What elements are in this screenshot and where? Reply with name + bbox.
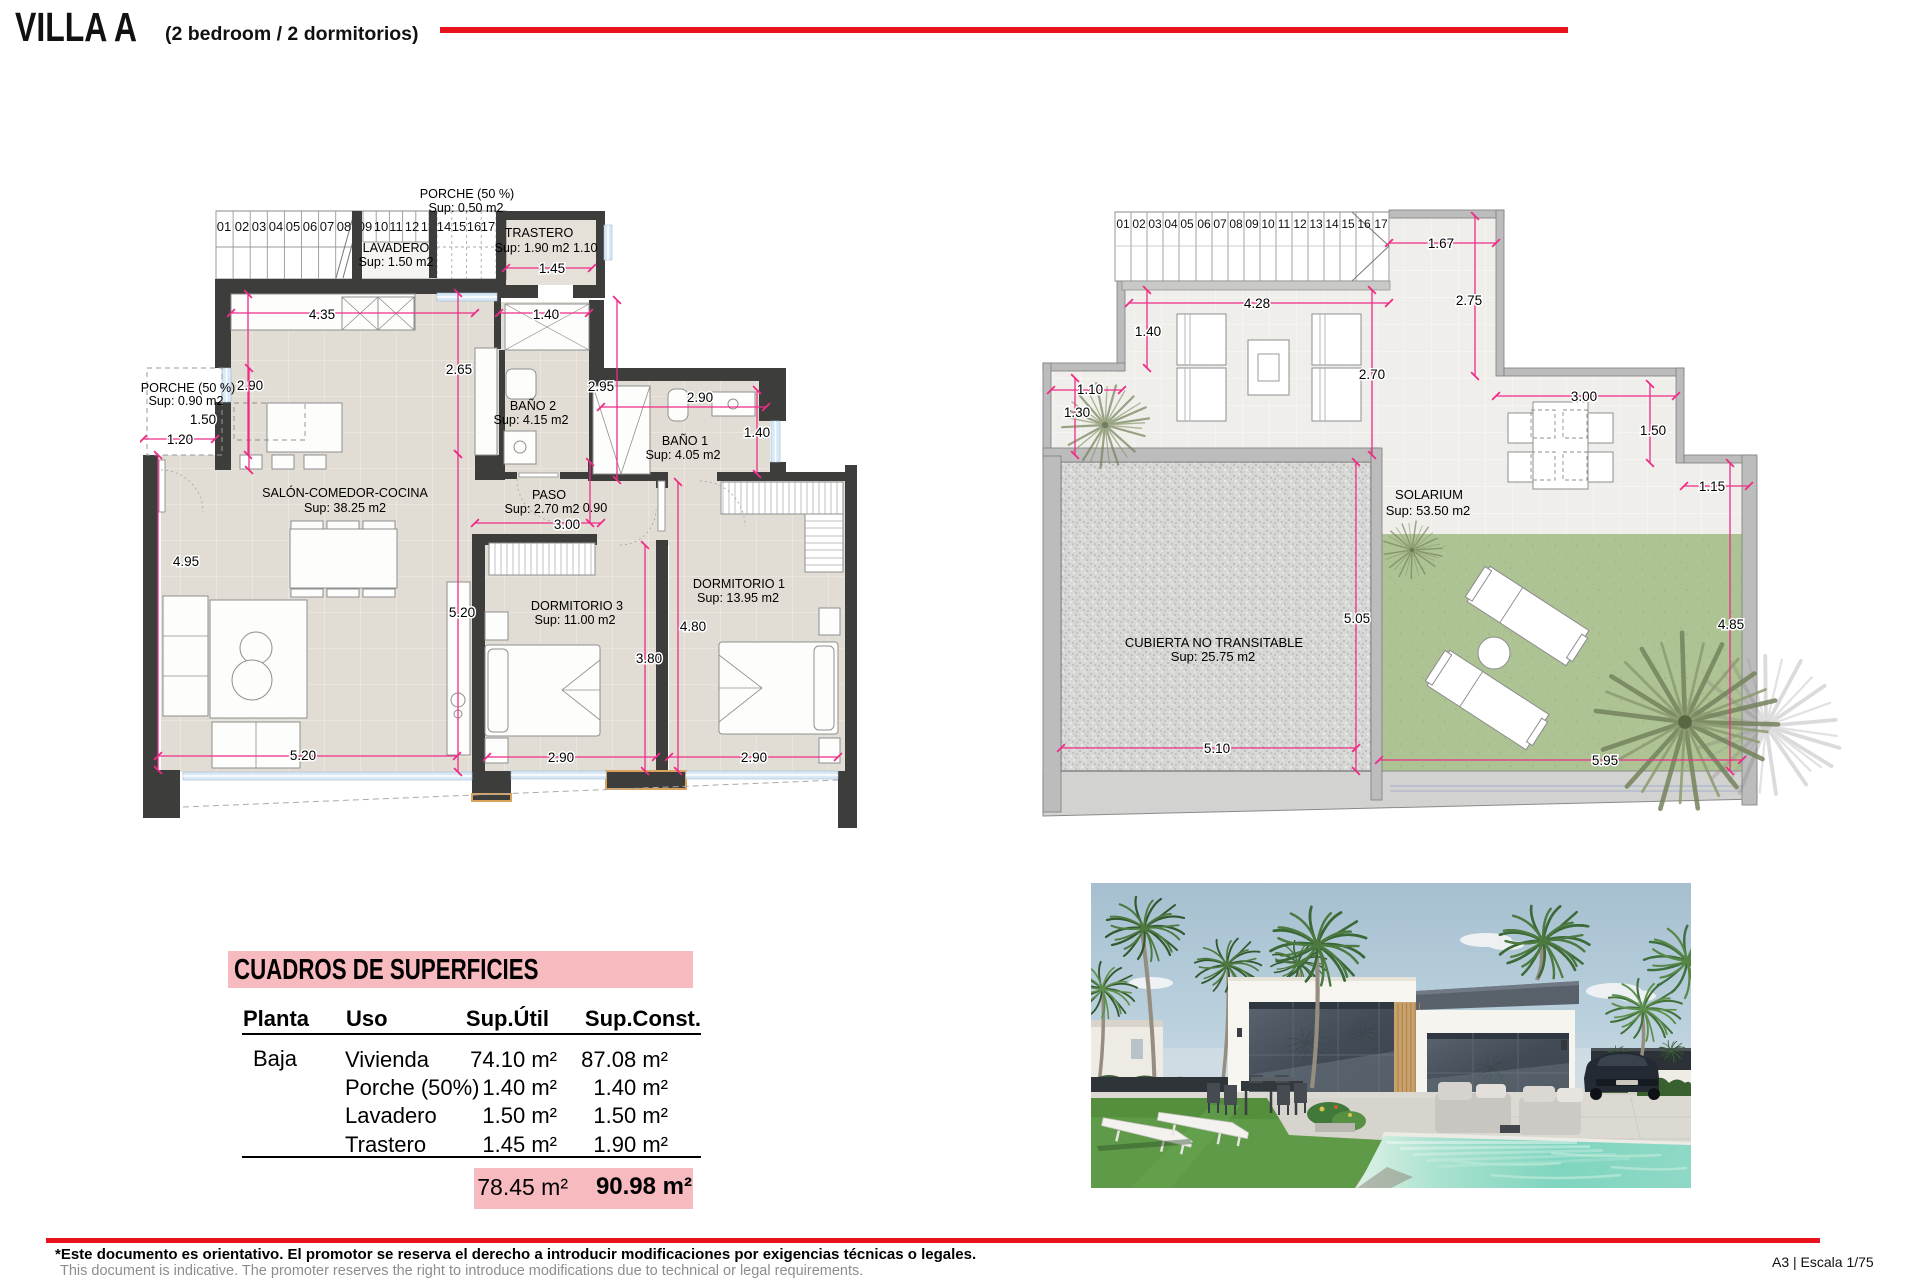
svg-text:4.35: 4.35 (309, 307, 335, 322)
svg-text:14: 14 (1325, 217, 1339, 231)
svg-text:4.28: 4.28 (1244, 296, 1270, 311)
svg-text:Sup: 0.90 m2: Sup: 0.90 m2 (149, 394, 224, 408)
svg-text:2.90: 2.90 (741, 750, 767, 765)
svg-text:08: 08 (1229, 217, 1243, 231)
svg-text:16: 16 (1357, 217, 1371, 231)
svg-text:04: 04 (1164, 217, 1178, 231)
svg-text:3.00: 3.00 (1571, 389, 1597, 404)
svg-text:4.95: 4.95 (173, 554, 199, 569)
svg-text:12: 12 (405, 219, 419, 234)
svg-text:5.20: 5.20 (449, 605, 475, 620)
svg-text:Sup: 25.75 m2: Sup: 25.75 m2 (1171, 649, 1256, 664)
svg-text:14: 14 (437, 219, 451, 234)
svg-text:PASO: PASO (532, 488, 566, 502)
svg-text:1.50: 1.50 (1640, 423, 1666, 438)
svg-text:2.95: 2.95 (588, 379, 614, 394)
svg-text:1.40: 1.40 (744, 425, 770, 440)
svg-text:SALÓN-COMEDOR-COCINA: SALÓN-COMEDOR-COCINA (262, 485, 428, 500)
svg-text:Sup: 13.95 m2: Sup: 13.95 m2 (697, 591, 779, 605)
svg-text:06: 06 (1197, 217, 1211, 231)
svg-text:01: 01 (1116, 217, 1130, 231)
svg-text:DORMITORIO 1: DORMITORIO 1 (693, 577, 785, 591)
svg-text:BAÑO 2: BAÑO 2 (510, 399, 556, 413)
svg-text:SOLARIUM: SOLARIUM (1395, 487, 1463, 502)
svg-text:2.75: 2.75 (1456, 293, 1482, 308)
svg-text:03: 03 (1148, 217, 1162, 231)
svg-text:07: 07 (320, 219, 334, 234)
svg-text:13: 13 (1309, 217, 1323, 231)
svg-text:06: 06 (303, 219, 317, 234)
svg-text:1.40: 1.40 (1135, 324, 1161, 339)
svg-text:1.15: 1.15 (1699, 479, 1725, 494)
svg-text:04: 04 (269, 219, 283, 234)
svg-text:5.05: 5.05 (1344, 611, 1370, 626)
svg-text:1.50: 1.50 (190, 412, 216, 427)
svg-text:1.67: 1.67 (1428, 236, 1454, 251)
svg-text:Sup: 38.25 m2: Sup: 38.25 m2 (304, 501, 386, 515)
svg-text:Sup: 4.15 m2: Sup: 4.15 m2 (494, 413, 569, 427)
svg-text:1.10: 1.10 (1077, 382, 1103, 397)
svg-text:09: 09 (1245, 217, 1259, 231)
svg-text:Sup: 53.50 m2: Sup: 53.50 m2 (1386, 503, 1471, 518)
svg-text:CUBIERTA NO TRANSITABLE: CUBIERTA NO TRANSITABLE (1125, 635, 1304, 650)
svg-text:Sup: 2.70 m2: Sup: 2.70 m2 (505, 502, 580, 516)
svg-text:05: 05 (286, 219, 300, 234)
svg-text:01: 01 (217, 219, 231, 234)
svg-text:10: 10 (1261, 217, 1275, 231)
svg-text:1.30: 1.30 (1064, 405, 1090, 420)
svg-text:07: 07 (1213, 217, 1227, 231)
svg-text:0.90: 0.90 (583, 501, 608, 515)
svg-text:Sup: 1.50 m2: Sup: 1.50 m2 (359, 255, 434, 269)
svg-text:3.80: 3.80 (636, 651, 662, 666)
svg-text:2.90: 2.90 (548, 750, 574, 765)
svg-text:1.45: 1.45 (539, 261, 565, 276)
svg-text:2.90: 2.90 (687, 390, 713, 405)
svg-text:1.40: 1.40 (533, 307, 559, 322)
svg-text:Sup: 4.05 m2: Sup: 4.05 m2 (646, 448, 721, 462)
svg-text:4.80: 4.80 (680, 619, 706, 634)
svg-text:15: 15 (452, 219, 466, 234)
svg-text:Sup: 1.90 m2 1.10: Sup: 1.90 m2 1.10 (495, 241, 598, 255)
svg-text:1.20: 1.20 (167, 432, 193, 447)
svg-text:5.95: 5.95 (1592, 753, 1618, 768)
svg-text:2.90: 2.90 (237, 378, 263, 393)
svg-text:02: 02 (1132, 217, 1146, 231)
svg-text:11: 11 (1278, 217, 1291, 231)
svg-text:08: 08 (337, 219, 351, 234)
svg-text:17: 17 (481, 219, 495, 234)
svg-text:5.20: 5.20 (290, 748, 316, 763)
svg-text:LAVADERO: LAVADERO (363, 241, 430, 255)
svg-text:16: 16 (467, 219, 481, 234)
svg-text:TRASTERO: TRASTERO (505, 226, 574, 240)
svg-text:Sup: 0.50 m2: Sup: 0.50 m2 (429, 201, 504, 215)
svg-text:4.85: 4.85 (1718, 617, 1744, 632)
svg-text:12: 12 (1293, 217, 1307, 231)
svg-text:PORCHE (50 %): PORCHE (50 %) (141, 381, 235, 395)
svg-text:02: 02 (235, 219, 249, 234)
svg-text:BAÑO 1: BAÑO 1 (662, 434, 708, 448)
svg-text:05: 05 (1180, 217, 1194, 231)
svg-text:03: 03 (252, 219, 266, 234)
svg-text:5.10: 5.10 (1204, 741, 1230, 756)
svg-text:2.70: 2.70 (1359, 367, 1385, 382)
svg-text:2.65: 2.65 (446, 362, 472, 377)
svg-text:15: 15 (1341, 217, 1355, 231)
svg-text:PORCHE (50 %): PORCHE (50 %) (420, 187, 514, 201)
svg-text:DORMITORIO 3: DORMITORIO 3 (531, 599, 623, 613)
svg-text:Sup: 11.00 m2: Sup: 11.00 m2 (535, 613, 616, 627)
svg-text:10: 10 (374, 219, 388, 234)
svg-text:17: 17 (1374, 217, 1388, 231)
svg-text:3.00: 3.00 (554, 517, 580, 532)
svg-text:11: 11 (389, 219, 403, 234)
